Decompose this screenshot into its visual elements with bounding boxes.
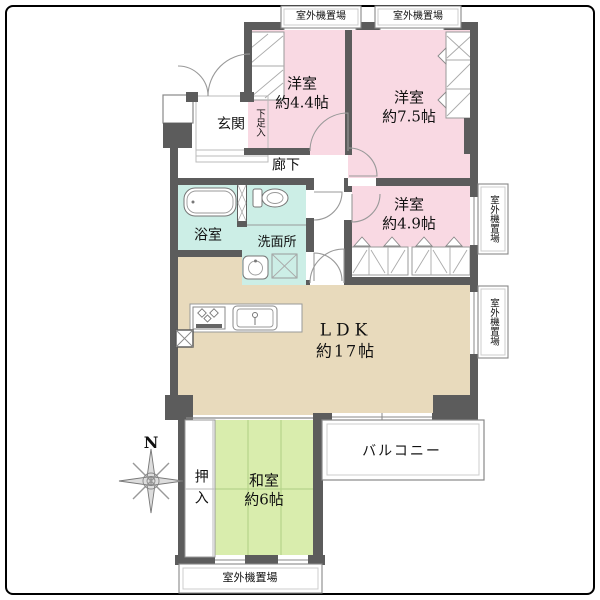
room-name: 洋室 xyxy=(382,88,436,107)
compass-icon xyxy=(119,449,183,513)
closet-49-right xyxy=(412,247,470,275)
room-size: 約4.4帖 xyxy=(275,93,329,112)
label-outdoor-unit-right-upper: 室外機置場 xyxy=(487,195,499,243)
label-bathroom: 浴室 xyxy=(194,227,222,245)
label-outdoor-unit-bottom: 室外機置場 xyxy=(223,571,278,585)
closet-49-left xyxy=(350,247,408,275)
label-washroom: 洗面所 xyxy=(257,235,296,251)
floor-plan: 洋室 約4.4帖 洋室 約7.5帖 洋室 約4.9帖 LDK 約17帖 和室 約… xyxy=(0,0,600,600)
label-ldk: LDK 約17帖 xyxy=(316,320,376,361)
label-entrance: 玄関 xyxy=(217,116,245,134)
room-size: 約7.5帖 xyxy=(382,107,436,126)
label-shoe-cupboard: 下足入 xyxy=(253,109,265,138)
pipe-space-icon xyxy=(176,330,193,347)
room-size: 約4.9帖 xyxy=(382,214,436,233)
label-western-room-75: 洋室 約7.5帖 xyxy=(382,88,436,126)
room-size: 約17帖 xyxy=(316,342,376,362)
washroom-door-arc xyxy=(314,253,342,281)
bathtub-icon xyxy=(184,188,236,216)
label-outdoor-unit-top-right: 室外機置場 xyxy=(393,11,443,24)
kitchen-sink-icon xyxy=(233,306,277,330)
label-compass-north: N xyxy=(144,433,159,453)
label-balcony: バルコニー xyxy=(362,443,442,461)
toilet-door-arc xyxy=(314,192,342,220)
label-japanese-room: 和室 約6帖 xyxy=(244,471,284,509)
room-size: 約6帖 xyxy=(244,490,284,509)
room-name: LDK xyxy=(316,320,376,341)
entrance-door-arc-left xyxy=(178,66,208,96)
label-western-room-49: 洋室 約4.9帖 xyxy=(382,195,436,233)
toilet-icon xyxy=(253,189,288,207)
label-outdoor-unit-top-left: 室外機置場 xyxy=(296,11,346,24)
label-futon-closet: 押入 xyxy=(191,469,209,511)
room-name: 和室 xyxy=(244,471,284,490)
stove-icon xyxy=(193,307,225,329)
label-outdoor-unit-right-lower: 室外機置場 xyxy=(487,298,499,346)
entrance-door-arc-right xyxy=(208,54,250,96)
label-western-room-44: 洋室 約4.4帖 xyxy=(275,74,329,112)
label-hallway: 廊下 xyxy=(272,157,300,175)
room-name: 洋室 xyxy=(275,74,329,93)
washbasin-icon xyxy=(243,256,268,279)
room-name: 洋室 xyxy=(382,195,436,214)
